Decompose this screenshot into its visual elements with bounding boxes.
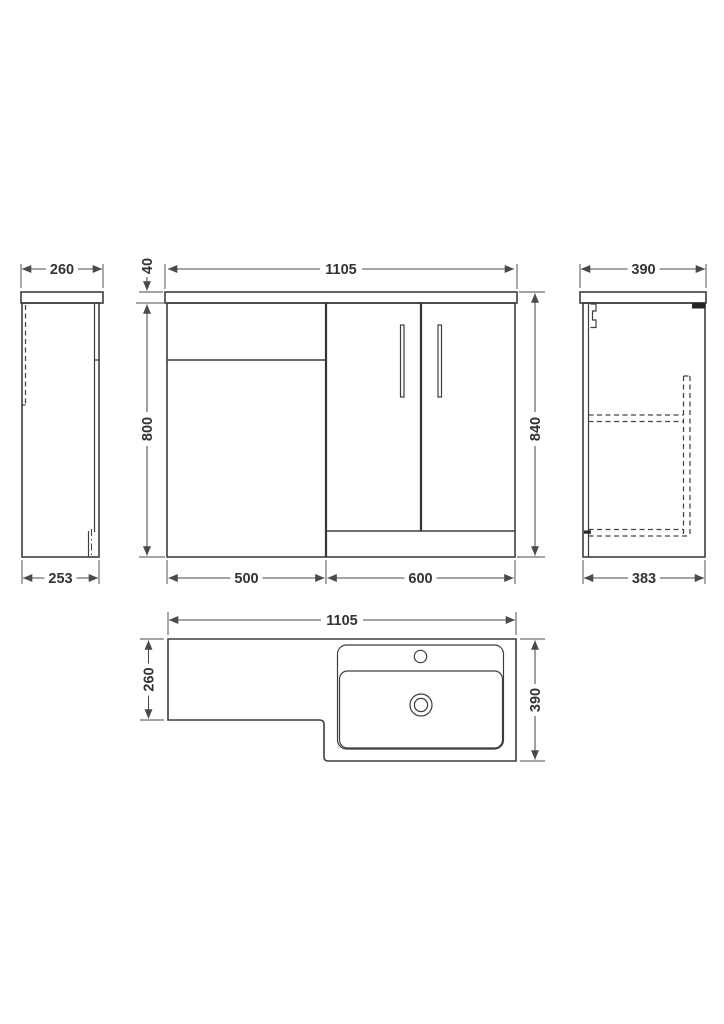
dim-cabinet-height: 800: [139, 305, 165, 558]
worktop-side-left: [21, 292, 103, 303]
side-view-right: 390 383: [580, 262, 706, 587]
dim-label: 1105: [325, 262, 356, 278]
dim-side-left-top: 260: [21, 262, 103, 288]
dim-right-unit-width: 600: [328, 560, 516, 587]
worktop-front: [165, 292, 517, 303]
dim-label: 383: [632, 571, 656, 587]
dim-label: 500: [234, 571, 258, 587]
dim-side-right-top: 390: [580, 262, 706, 288]
dim-side-right-bottom: 383: [583, 560, 705, 587]
dim-label: 1105: [326, 613, 357, 629]
basin-bowl: [340, 671, 503, 748]
tap-hole: [414, 650, 426, 662]
dim-label: 840: [528, 417, 544, 441]
worktop-plan-outline: [168, 639, 516, 761]
dim-label: 800: [140, 417, 156, 441]
dim-label: 390: [631, 262, 655, 278]
dim-label: 260: [50, 262, 74, 278]
dim-overall-height: 840: [517, 292, 545, 557]
dim-label: 260: [142, 667, 158, 691]
dim-label: 600: [408, 571, 432, 587]
dim-left-unit-width: 500: [167, 560, 326, 587]
dim-plan-right-depth: 390: [520, 639, 545, 761]
cabinet-body-side-left: [22, 303, 99, 557]
dim-side-left-bottom: 253: [22, 560, 99, 587]
dim-worktop-thickness: 40: [136, 258, 165, 303]
dim-plan-left-depth: 260: [140, 639, 164, 720]
worktop-side-right: [580, 292, 706, 303]
dim-front-overall-width: 1105: [165, 262, 517, 289]
waste-outlet-inner: [414, 698, 427, 711]
door-handle-right: [438, 325, 442, 397]
waste-outlet-outer: [410, 694, 432, 716]
door-handle-left: [401, 325, 405, 397]
drawing-canvas: 260 253 1105 40: [0, 0, 724, 1024]
side-view-left: 260 253: [21, 262, 103, 587]
dim-plan-overall-width: 1105: [168, 612, 516, 635]
cabinet-body-front: [167, 303, 515, 557]
plan-view: 1105 260 390: [140, 612, 545, 761]
dim-label: 253: [48, 571, 72, 587]
technical-drawing: 260 253 1105 40: [0, 0, 724, 1024]
dim-label: 40: [140, 258, 156, 274]
side-handle: [692, 303, 706, 309]
plinth-joint-mark: [584, 531, 591, 534]
cabinet-body-side-right: [583, 303, 705, 557]
dim-label: 390: [528, 688, 544, 712]
basin-rim: [338, 645, 504, 749]
hinge-plate: [591, 304, 597, 328]
front-view: 1105 40 800 840 500: [136, 258, 545, 587]
